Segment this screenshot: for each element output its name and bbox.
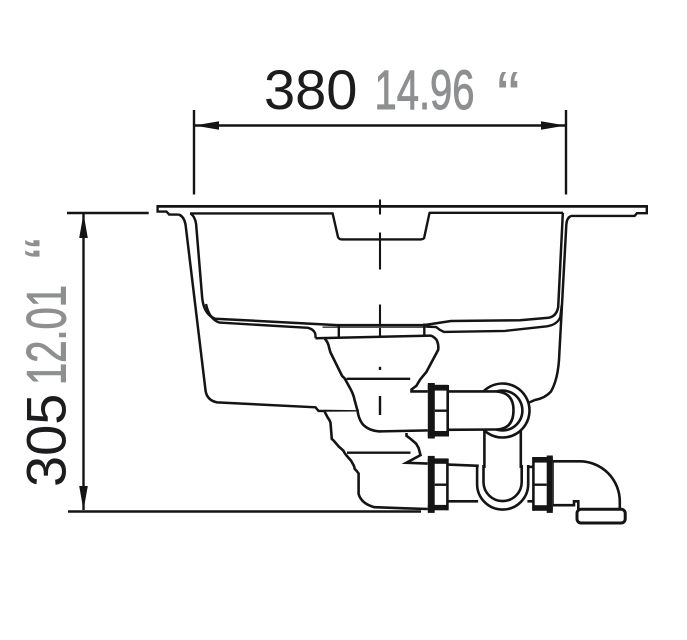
svg-text:14.96: 14.96 <box>375 58 475 121</box>
svg-text:12.01: 12.01 <box>15 285 78 385</box>
svg-text:380: 380 <box>264 58 357 121</box>
svg-text:“: “ <box>12 238 84 259</box>
svg-text:305: 305 <box>15 394 78 487</box>
svg-text:“: “ <box>497 57 520 135</box>
